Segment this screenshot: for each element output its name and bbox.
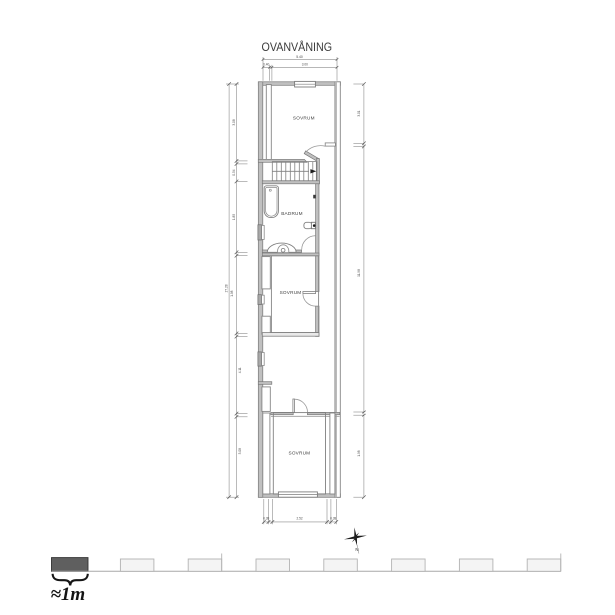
svg-text:5.40: 5.40 (296, 55, 303, 59)
svg-text:OVANVÅNING: OVANVÅNING (262, 39, 333, 54)
svg-text:1.85: 1.85 (232, 214, 236, 220)
svg-text:3.00: 3.00 (302, 62, 308, 66)
svg-text:BADRUM: BADRUM (281, 211, 303, 216)
svg-text:2.52: 2.52 (296, 516, 302, 520)
svg-text:0.40: 0.40 (263, 62, 269, 66)
svg-text:3.01: 3.01 (357, 110, 361, 116)
svg-text:SOVRUM: SOVRUM (289, 450, 311, 455)
svg-text:0.54: 0.54 (232, 169, 236, 175)
svg-text:0.38: 0.38 (263, 516, 269, 520)
svg-text:≈1m: ≈1m (51, 584, 86, 605)
svg-text:27.28: 27.28 (225, 284, 229, 292)
svg-text:4.11: 4.11 (238, 367, 242, 373)
svg-text:3.08: 3.08 (238, 448, 242, 454)
svg-text:SOVRUM: SOVRUM (280, 290, 302, 295)
svg-text:0.38: 0.38 (330, 516, 336, 520)
svg-text:SOVRUM: SOVRUM (293, 116, 315, 121)
svg-text:1.98: 1.98 (230, 290, 234, 296)
svg-text:1.98: 1.98 (357, 450, 361, 456)
svg-text:N: N (355, 547, 358, 552)
svg-text:3.08: 3.08 (232, 119, 236, 125)
svg-text:11.98: 11.98 (357, 269, 361, 277)
